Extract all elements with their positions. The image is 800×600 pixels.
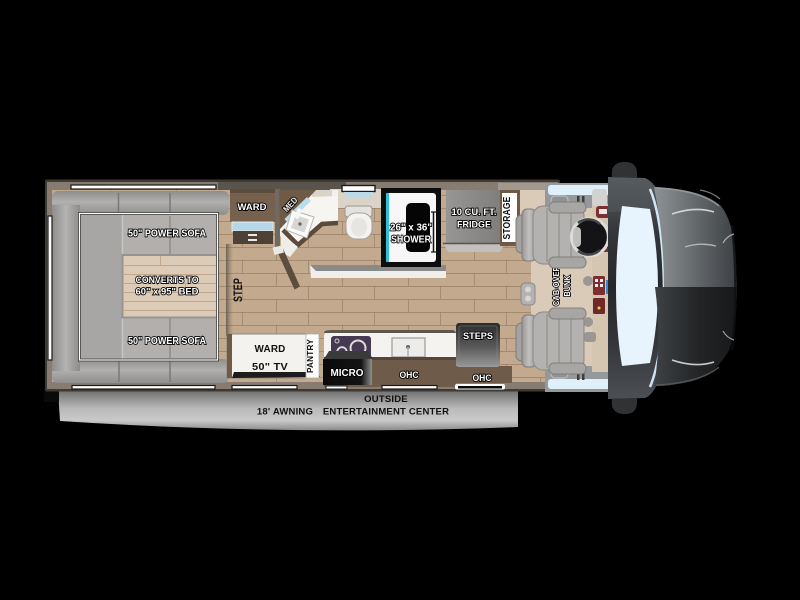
svg-text:OHC: OHC	[400, 370, 419, 380]
svg-text:50" POWER SOFA: 50" POWER SOFA	[128, 336, 206, 347]
svg-text:50" POWER SOFA: 50" POWER SOFA	[128, 229, 206, 240]
svg-text:BUNK: BUNK	[562, 275, 572, 297]
svg-text:OHC: OHC	[473, 373, 492, 383]
svg-text:STORAGE: STORAGE	[502, 196, 513, 239]
svg-text:50" TV: 50" TV	[252, 361, 288, 373]
svg-text:MICRO: MICRO	[331, 368, 364, 379]
svg-text:CONVERTS TO: CONVERTS TO	[136, 275, 199, 286]
svg-text:OUTSIDE: OUTSIDE	[364, 394, 408, 405]
svg-text:STEPS: STEPS	[463, 331, 493, 342]
svg-text:26" x 36": 26" x 36"	[390, 222, 432, 234]
svg-text:WARD: WARD	[238, 202, 268, 212]
svg-text:60" x 95" BED: 60" x 95" BED	[136, 287, 199, 298]
svg-text:STEP: STEP	[233, 278, 245, 302]
svg-text:ENTERTAINMENT CENTER: ENTERTAINMENT CENTER	[323, 407, 449, 418]
svg-text:10 CU. FT.: 10 CU. FT.	[452, 207, 497, 218]
svg-text:WARD: WARD	[255, 343, 286, 355]
svg-text:18' AWNING: 18' AWNING	[257, 407, 313, 418]
svg-text:CAB-OVER: CAB-OVER	[551, 266, 561, 306]
svg-text:PANTRY: PANTRY	[305, 339, 315, 373]
svg-text:SHOWER: SHOWER	[391, 234, 431, 246]
svg-text:FRIDGE: FRIDGE	[457, 220, 491, 231]
